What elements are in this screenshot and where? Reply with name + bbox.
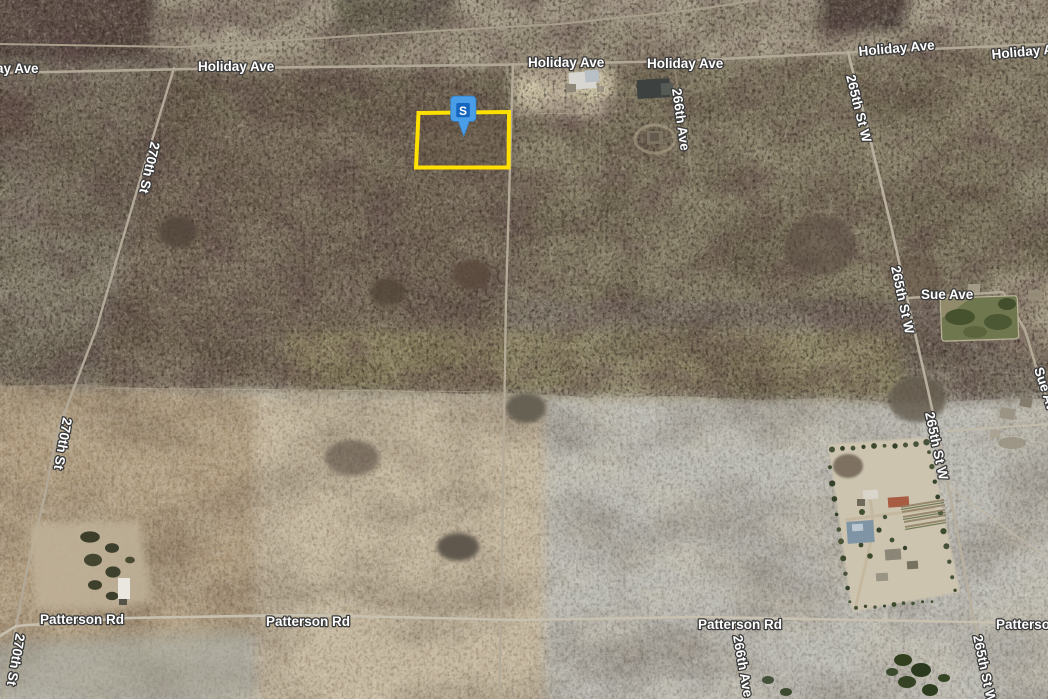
svg-text:Holiday Ave: Holiday Ave [647,56,724,71]
svg-text:Patterson Rd: Patterson Rd [266,614,350,629]
svg-text:ay Ave: ay Ave [0,61,39,76]
svg-text:Holiday Ave: Holiday Ave [198,59,275,74]
svg-text:S: S [459,104,467,118]
svg-text:Holiday Ave: Holiday Ave [528,55,605,70]
svg-text:Patterson R: Patterson R [996,617,1048,632]
svg-text:Sue Ave: Sue Ave [921,287,974,302]
svg-text:Patterson Rd: Patterson Rd [698,617,782,632]
svg-text:Patterson Rd: Patterson Rd [40,612,124,627]
